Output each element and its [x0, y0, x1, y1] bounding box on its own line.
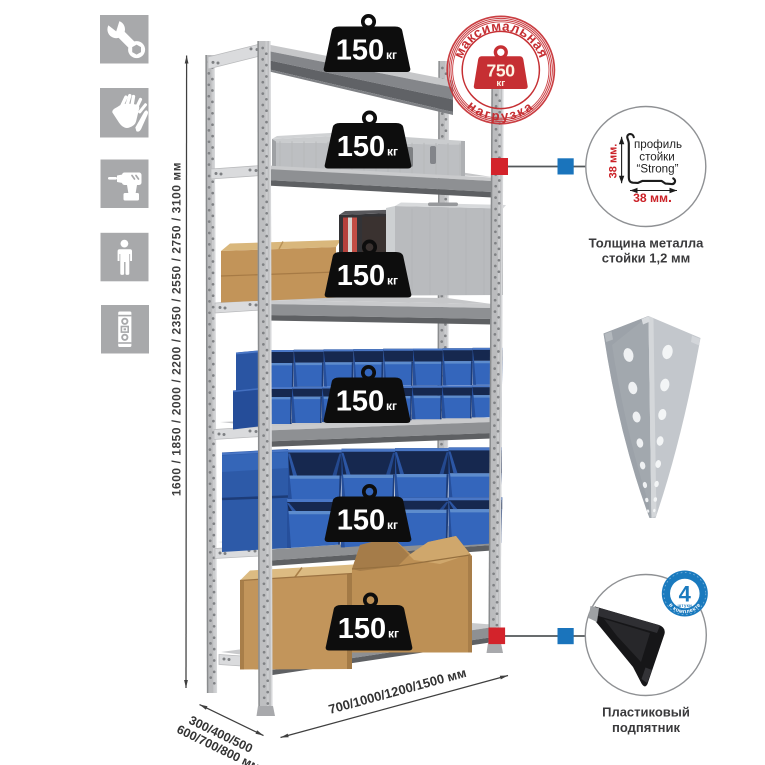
svg-text:“Strong”: “Strong” — [637, 162, 679, 175]
svg-text:Толщина металла: Толщина металла — [589, 236, 704, 251]
svg-text:38 мм.: 38 мм. — [608, 144, 620, 179]
svg-text:150: 150 — [338, 613, 386, 645]
svg-text:38 мм.: 38 мм. — [633, 189, 672, 205]
svg-text:стойки 1,2 мм: стойки 1,2 мм — [602, 251, 690, 266]
svg-text:кг: кг — [388, 627, 399, 641]
svg-text:кг: кг — [387, 518, 398, 532]
svg-text:кг: кг — [496, 78, 505, 89]
svg-text:150: 150 — [336, 35, 384, 67]
svg-text:1600 / 1850 / 2000 / 2200 / 23: 1600 / 1850 / 2000 / 2200 / 2350 / 2550 … — [170, 162, 184, 496]
svg-text:150: 150 — [336, 386, 384, 418]
svg-text:150: 150 — [337, 505, 385, 537]
svg-text:штуки: штуки — [678, 603, 693, 608]
svg-text:профиль: профиль — [634, 138, 682, 151]
svg-text:кг: кг — [387, 274, 398, 288]
svg-text:кг: кг — [387, 145, 398, 159]
svg-text:150: 150 — [337, 131, 385, 163]
svg-text:150: 150 — [337, 260, 385, 292]
svg-text:подпятник: подпятник — [612, 720, 681, 735]
svg-text:кг: кг — [386, 48, 397, 62]
svg-text:кг: кг — [386, 399, 397, 413]
svg-text:Пластиковый: Пластиковый — [602, 705, 690, 720]
